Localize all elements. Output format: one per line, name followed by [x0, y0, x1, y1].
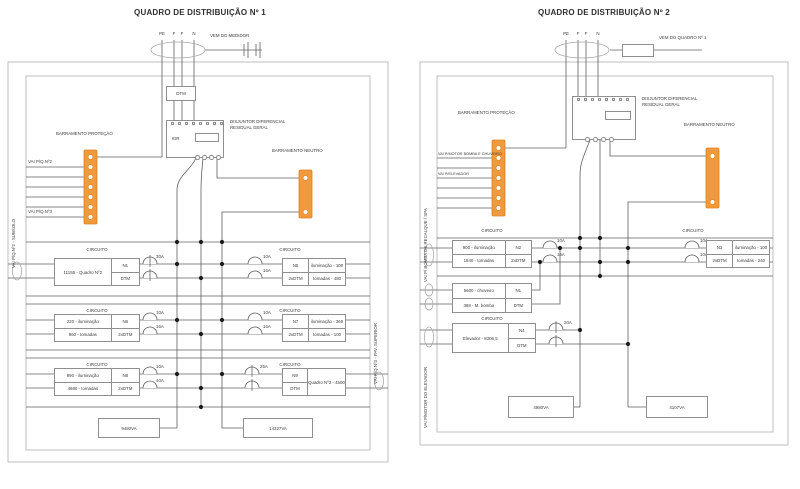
breaker-rating: 16A: [557, 252, 565, 258]
phase-total-box: 4980VA: [508, 396, 574, 418]
circuit-protection: 2xDTM: [112, 382, 139, 396]
circuit-load: 1840 - tomadas: [453, 254, 505, 268]
source-label: VEM DO MEDIDOR: [210, 33, 249, 39]
phase-total-box: 14327VA: [243, 418, 313, 438]
circuit-protection: DTM: [509, 338, 535, 353]
circuit-id: N1: [506, 284, 531, 298]
circuit-load: iluminação - 100: [733, 241, 769, 254]
circuit-box: 11155 - Quadro Nº2 N1 DTM: [54, 258, 140, 286]
conductor-label-n: N: [187, 31, 201, 37]
breaker-rating: 16A: [263, 324, 271, 330]
dtm-box: DTM: [166, 86, 196, 101]
panel1-breaker-symbols: [143, 255, 262, 391]
circuit-load: 11155 - Quadro Nº2: [55, 259, 111, 285]
protection-bus-label: BARRAMENTO PROTEÇÃO: [458, 110, 515, 116]
breaker-rating: 25A: [260, 364, 268, 370]
breaker-rating: 20A: [564, 320, 572, 326]
circuit-id: N9: [283, 369, 307, 382]
circuit-box: N7 2xDTM iluminação - 360 tomadas - 100: [282, 314, 346, 342]
circuit-box: N3 2xDTM iluminação - 100 tomadas - 240: [706, 240, 770, 268]
panel1-busbars: [84, 150, 312, 224]
tap-label-q2: VAI P/Q.Nº2: [28, 159, 52, 165]
conductor-label-n: N: [591, 31, 605, 37]
phase-total-box: 9480VA: [98, 418, 160, 438]
circuit-load: 368 - M. bomba: [453, 298, 505, 313]
circuit-box: Elevador - 8306,5 N4 DTM: [452, 323, 536, 353]
breaker-rating: 30A: [156, 254, 164, 260]
circuit-id: N1: [112, 259, 139, 272]
circuit-load: 960 - tomadas: [55, 328, 111, 342]
rating-window: [605, 111, 631, 120]
breaker-rating: 16A: [156, 324, 164, 330]
circuit-id: N5: [283, 259, 308, 272]
circuit-box: N9 DTM Quadro Nº3 - 4500: [282, 368, 346, 396]
circuito-header: CIRCUITO: [268, 362, 312, 368]
breaker-rating: 16A: [263, 268, 271, 274]
circuit-load: 900 - iluminação: [453, 241, 505, 254]
breaker-rating: 40A: [156, 378, 164, 384]
circuito-header: CIRCUITO: [470, 316, 514, 322]
feed-duct-symbol: [622, 44, 654, 57]
circuit-protection: 2xDTM: [283, 328, 308, 342]
circuit-load: tomadas - 240: [733, 254, 769, 268]
protection-bus-label: BARRAMENTO PROTEÇÃO: [56, 131, 113, 137]
source-label: VEM DO QUADRO Nº 1: [659, 35, 706, 41]
edge-label-subsolo: VAI P/Q.Nº2 - SUBSOLO: [11, 219, 17, 268]
circuit-id: N4: [509, 324, 535, 338]
main-breaker-label: DISJUNTOR DIFERENCIAL RESIDUAL GERAL: [230, 119, 292, 130]
edge-label-pav-superior: VAI P/Q.Nº3 - PAV. SUPERIOR: [373, 323, 379, 384]
panel1-junction-dots: [175, 240, 224, 409]
neutral-bus-label: BARRAMENTO NEUTRO: [684, 122, 735, 128]
panel2-busbars: [492, 140, 719, 216]
circuit-id: N3: [707, 241, 732, 254]
circuit-load: iluminação - 100: [309, 259, 345, 272]
panel1-title: QUADRO DE DISTRIBUIÇÃO Nº 1: [90, 8, 310, 17]
neutral-bus-label: BARRAMENTO NEUTRO: [272, 148, 323, 154]
circuit-load: tomadas - 480: [309, 272, 345, 286]
main-residual-breaker: [572, 96, 636, 140]
circuito-header: CIRCUITO: [268, 308, 312, 314]
circuit-load: 4980 - tomadas: [55, 382, 111, 396]
tap-label-elevador: VAI P/ELEVADOR: [438, 172, 469, 177]
idr-label: IDR: [172, 136, 180, 142]
circuit-load: iluminação - 360: [309, 315, 345, 328]
circuit-box: 900 - iluminação 1840 - tomadas N2 2xDTM: [452, 240, 532, 268]
circuit-box: 990 - iluminação 4980 - tomadas N8 2xDTM: [54, 368, 140, 396]
circuit-protection: 2xDTM: [283, 272, 308, 286]
tap-label-q3: VAI P/Q.Nº3: [28, 209, 52, 215]
circuito-header: CIRCUITO: [470, 228, 514, 234]
main-residual-breaker: IDR: [166, 120, 224, 158]
circuit-box: 220 - iluminação 960 - tomadas N6 2xDTM: [54, 314, 140, 342]
breaker-rating: 10A: [156, 364, 164, 370]
main-breaker-label: DISJUNTOR DIFERENCIAL RESIDUAL GERAL: [642, 96, 704, 107]
circuit-load: tomadas - 100: [309, 328, 345, 342]
circuito-header: CIRCUITO: [268, 247, 312, 253]
panel2-title: QUADRO DE DISTRIBUIÇÃO Nº 2: [494, 8, 714, 17]
circuit-id: N8: [112, 369, 139, 382]
schematic-page: { "colors": { "busbar_fill": "#F09A3F", …: [0, 0, 800, 489]
circuit-load: Elevador - 8306,5: [453, 324, 508, 352]
edge-label-motor-elevador: VAI P/MOTOR DO ELEVADOR: [423, 367, 429, 428]
tap-label-bomba-chuveiro: VAI P/MOTOR BOMBA E CHUVEIRO: [438, 152, 502, 157]
circuit-protection: 2xDTM: [707, 254, 732, 268]
breaker-rating: 10A: [156, 310, 164, 316]
circuit-box: 5600 - chuveiro 368 - M. bomba N1 DTM: [452, 283, 532, 313]
breaker-rating: 10A: [263, 254, 271, 260]
rating-window: [195, 133, 219, 142]
circuito-header: CIRCUITO: [75, 362, 119, 368]
breaker-rating: 10A: [263, 310, 271, 316]
circuit-id: N7: [283, 315, 308, 328]
circuit-protection: 2xDTM: [112, 328, 139, 342]
circuito-header: CIRCUITO: [671, 228, 715, 234]
circuit-id: N6: [112, 315, 139, 328]
circuit-load: 220 - iluminação: [55, 315, 111, 328]
breaker-rating: 10A: [557, 238, 565, 244]
panel2-breaker-symbols: [543, 241, 699, 347]
circuito-header: CIRCUITO: [75, 247, 119, 253]
circuit-id: N2: [506, 241, 531, 254]
circuit-load: 5600 - chuveiro: [453, 284, 505, 298]
circuit-protection: 2xDTM: [506, 254, 531, 268]
circuit-protection: DTM: [283, 382, 307, 396]
phase-total-box: 4107VA: [646, 396, 708, 418]
circuit-load: Quadro Nº3 - 4500: [308, 369, 345, 395]
circuit-load: 990 - iluminação: [55, 369, 111, 382]
circuit-protection: DTM: [506, 298, 531, 313]
circuit-protection: DTM: [112, 272, 139, 286]
edge-label-recalque-spa: VAI P/ BOMBA DE RECALQUE / SPA: [423, 208, 429, 282]
circuito-header: CIRCUITO: [75, 308, 119, 314]
circuit-box: N5 2xDTM iluminação - 100 tomadas - 480: [282, 258, 346, 286]
